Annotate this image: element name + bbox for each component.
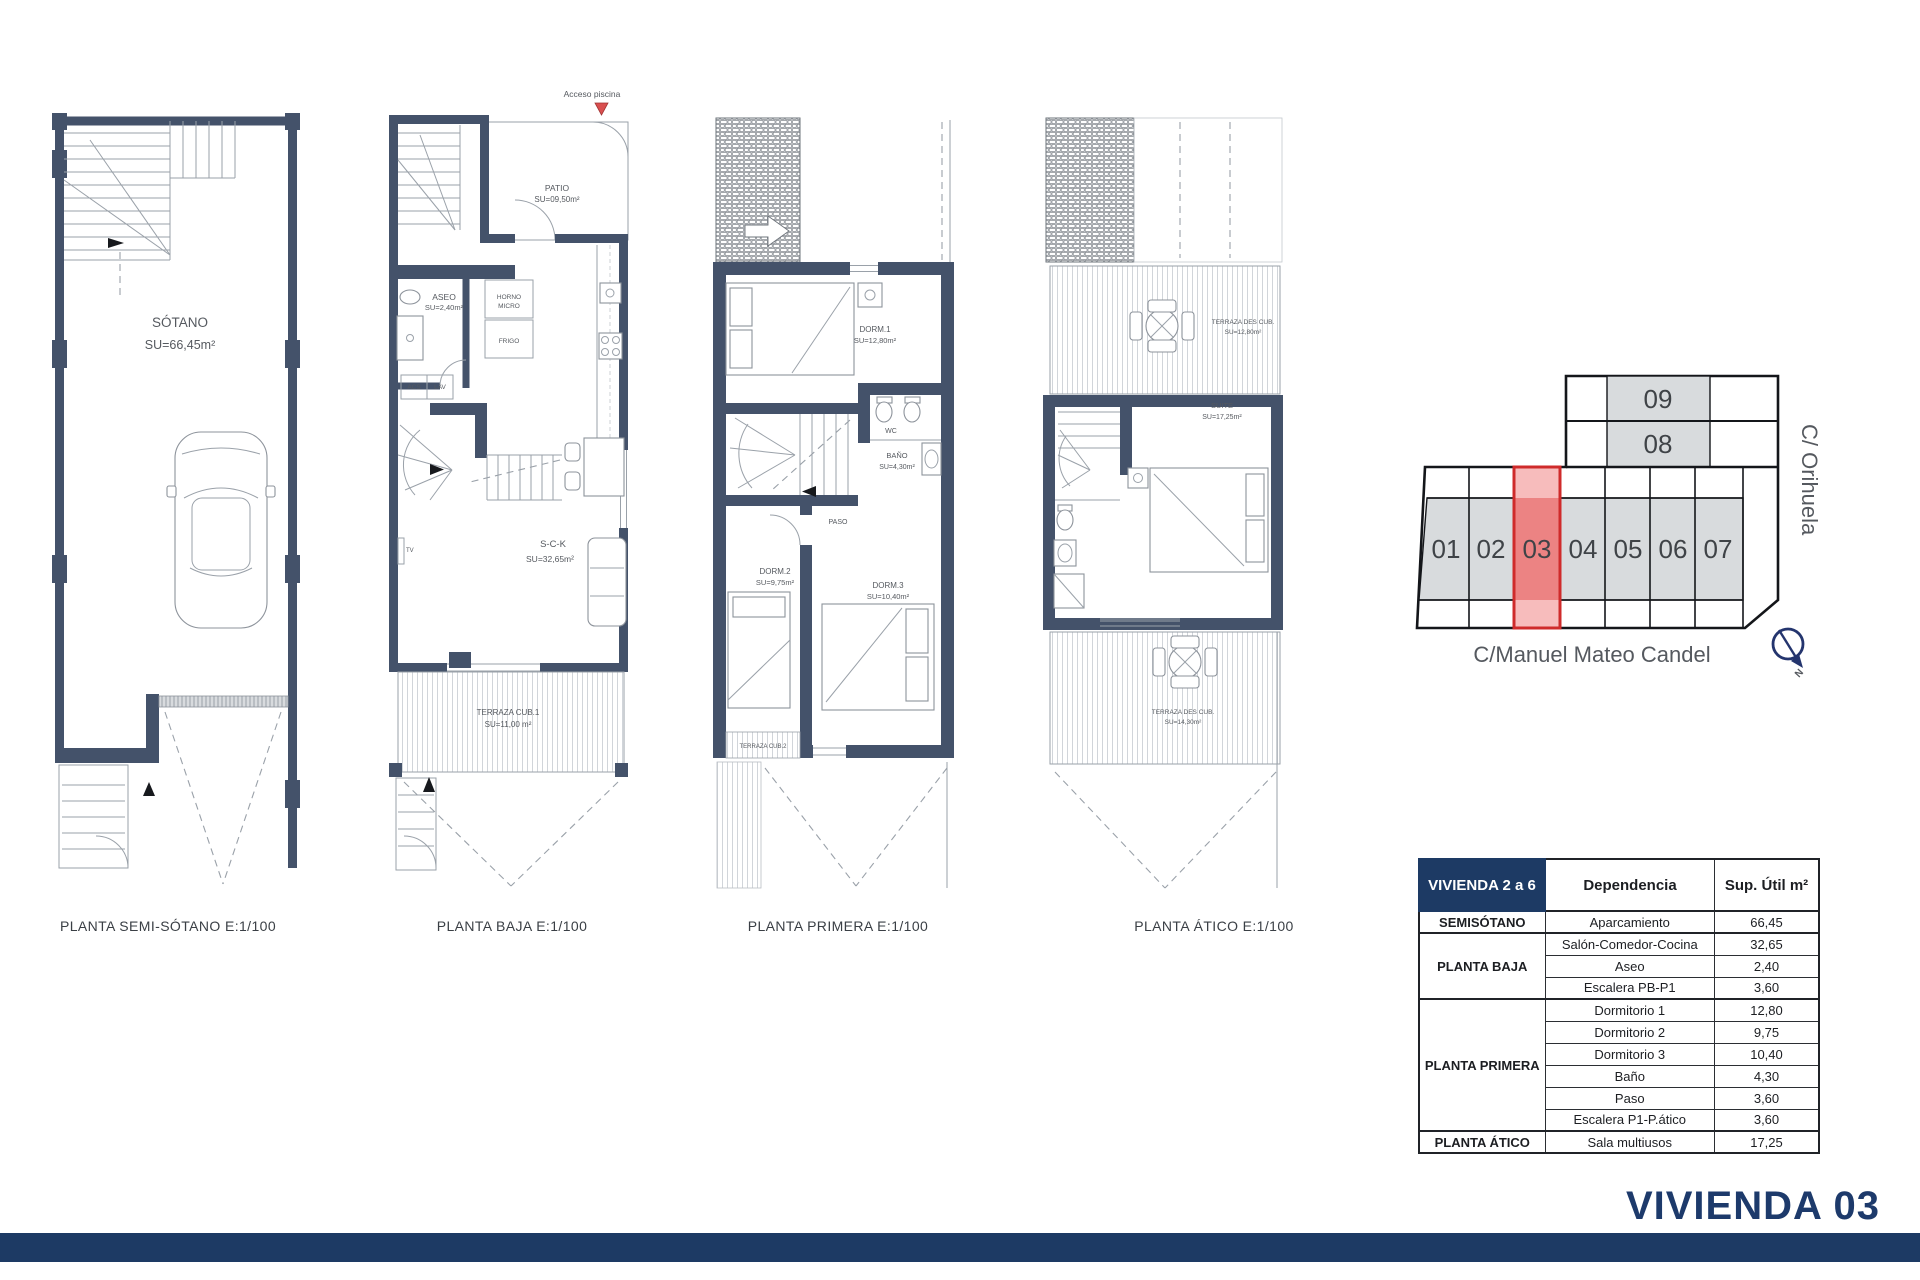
unit-number-03: 03 xyxy=(1523,534,1552,564)
sink-icon xyxy=(400,290,420,304)
room-label-terraza2: TERRAZA CUB.2 xyxy=(739,744,787,750)
table-cell-dep: Baño xyxy=(1545,1065,1715,1087)
street-label-bottom: C/Manuel Mateo Candel xyxy=(1473,642,1710,667)
pilaster xyxy=(449,652,471,668)
pergola-hatch xyxy=(716,118,800,262)
table-cell-dep: Dormitorio 1 xyxy=(1545,999,1715,1021)
ramp-edge xyxy=(1055,772,1165,888)
table-cell-dep: Escalera P1-P.ático xyxy=(1545,1109,1715,1131)
site-plan: 01 02 03 04 05 06 07 09 08 C/Manuel Mate… xyxy=(1417,376,1822,680)
room-area-sotano: SU=66,45m² xyxy=(145,338,216,352)
bed-dorm2 xyxy=(728,592,790,708)
stair-dash xyxy=(470,460,560,482)
acceso-piscina-label: Acceso piscina xyxy=(564,89,621,99)
room-area-dorm2: SU=9,75m² xyxy=(756,578,795,587)
wall xyxy=(1043,618,1283,630)
stair-dash xyxy=(772,420,850,490)
stairs xyxy=(1058,412,1120,488)
unit-number-09: 09 xyxy=(1644,384,1673,414)
floor-plan-atico: TERRAZA DES CUB. SU=12,80m² SU xyxy=(1043,118,1294,934)
wall xyxy=(1120,395,1132,475)
room-label-patio: PATIO xyxy=(545,183,570,193)
wall xyxy=(146,694,159,748)
ramp-edge xyxy=(856,768,947,886)
table-cell-dep: Dormitorio 2 xyxy=(1545,1021,1715,1043)
table-cell-sup: 17,25 xyxy=(1715,1131,1820,1153)
car-icon xyxy=(167,432,275,628)
room-label-dorm2: DORM.2 xyxy=(759,567,791,576)
wall xyxy=(726,403,858,414)
wall xyxy=(1043,395,1055,630)
unit-number-04: 04 xyxy=(1569,534,1598,564)
room-label-dorm1: DORM.1 xyxy=(859,325,891,334)
pilaster xyxy=(285,340,300,368)
unit-number-01: 01 xyxy=(1432,534,1461,564)
room-label-bano: BAÑO xyxy=(886,451,907,460)
wall xyxy=(475,403,487,458)
stairs xyxy=(64,121,235,260)
room-label-wc: WC xyxy=(885,428,897,435)
room-area-patio: SU=09,50m² xyxy=(534,195,579,204)
ramp-edge xyxy=(1165,772,1276,888)
pilaster xyxy=(285,780,300,808)
table-cell-sup: 2,40 xyxy=(1715,955,1820,977)
room-area-suite: SU=17,25m² xyxy=(1202,414,1242,421)
ramp-grille xyxy=(159,696,288,707)
table-cell-sup: 3,60 xyxy=(1715,1087,1820,1109)
ramp-edge xyxy=(165,712,223,884)
open-roof xyxy=(1134,118,1282,262)
bath-fixtures xyxy=(1054,505,1084,608)
floor-atico: PLANTA ÁTICO xyxy=(1419,1131,1545,1153)
floor-plan-baja: Acceso piscina PATIO SU=09,50m² xyxy=(389,89,628,934)
label-lav: LAV xyxy=(434,384,446,391)
door-arc xyxy=(515,200,555,240)
pilaster xyxy=(52,150,67,178)
wall xyxy=(858,383,954,395)
caption-baja: PLANTA BAJA E:1/100 xyxy=(437,918,588,934)
room-label-terr-sup: TERRAZA DES CUB. xyxy=(1212,319,1275,326)
ramp-edge xyxy=(511,782,618,886)
table-cell-dep: Sala multiusos xyxy=(1545,1131,1715,1153)
pergola-hatch xyxy=(1046,118,1134,262)
unit-number-06: 06 xyxy=(1659,534,1688,564)
unit-number-08: 08 xyxy=(1644,429,1673,459)
caption-semisotano: PLANTA SEMI-SÓTANO E:1/100 xyxy=(60,918,276,934)
direction-arrow-icon xyxy=(108,238,124,248)
table-cell-sup: 10,40 xyxy=(1715,1043,1820,1065)
entry-stairs xyxy=(396,777,436,870)
bed-suite xyxy=(1128,468,1268,572)
room-area-sck: SU=32,65m² xyxy=(526,554,574,564)
wall xyxy=(389,265,515,279)
ramp-edge xyxy=(765,768,856,886)
room-label-sck: S-C-K xyxy=(540,539,567,550)
wall xyxy=(941,262,954,758)
room-area-bano: SU=4,30m² xyxy=(879,464,915,471)
table-cell-sup: 9,75 xyxy=(1715,1021,1820,1043)
floor-semisotano: SEMISÓTANO xyxy=(1419,911,1545,933)
footer-bar xyxy=(0,1233,1920,1262)
room-label-aseo: ASEO xyxy=(432,292,456,302)
table-cell-dep: Aparcamiento xyxy=(1545,911,1715,933)
table-cell-dep: Dormitorio 3 xyxy=(1545,1043,1715,1065)
bed-dorm3 xyxy=(822,604,934,710)
floor-plan-semisotano: SÓTANO SU=66,45m² PLANTA SEMI-SÓTANO E:1… xyxy=(52,113,300,934)
wall xyxy=(713,262,726,758)
shower-icon xyxy=(397,316,423,360)
label-micro: MICRO xyxy=(498,303,520,310)
label-frigo: FRIGO xyxy=(499,338,520,345)
wall xyxy=(858,383,870,443)
wall xyxy=(1271,395,1283,630)
wall xyxy=(713,262,850,275)
table-cell-sup: 66,45 xyxy=(1715,911,1820,933)
table-cell-sup: 3,60 xyxy=(1715,977,1820,999)
unit-number-02: 02 xyxy=(1477,534,1506,564)
room-label-dorm3: DORM.3 xyxy=(872,581,904,590)
label-tv: TV xyxy=(406,548,414,554)
door-arc xyxy=(770,515,800,545)
room-label-sotano: SÓTANO xyxy=(152,315,208,330)
table-cell-dep: Escalera PB-P1 xyxy=(1545,977,1715,999)
patio-deck xyxy=(485,122,628,240)
ramp-edge xyxy=(223,712,281,884)
floor-baja: PLANTA BAJA xyxy=(1419,933,1545,999)
pilaster xyxy=(52,340,67,368)
room-label-paso: PASO xyxy=(829,519,848,526)
label-acs: ACS xyxy=(407,384,421,391)
pilaster xyxy=(52,113,67,130)
table-cell-sup: 32,65 xyxy=(1715,933,1820,955)
floor-primera: PLANTA PRIMERA xyxy=(1419,999,1545,1131)
tv-unit xyxy=(398,538,404,564)
table-cell-sup: 3,60 xyxy=(1715,1109,1820,1131)
room-area-terraza1: SU=11,00 m² xyxy=(485,720,532,729)
north-letter: N xyxy=(1793,667,1806,680)
room-area-aseo: SU=2,40m² xyxy=(425,303,464,312)
wall xyxy=(55,748,159,763)
wc-fixtures xyxy=(876,397,920,422)
wall xyxy=(1043,395,1283,407)
door-arc xyxy=(593,122,628,157)
exit-stairs xyxy=(59,765,155,868)
caption-atico: PLANTA ÁTICO E:1/100 xyxy=(1134,918,1293,934)
pilaster xyxy=(285,555,300,583)
pilaster xyxy=(52,555,67,583)
stairs xyxy=(398,125,460,230)
pilaster xyxy=(615,763,628,777)
room-area-dorm1: SU=12,80m² xyxy=(854,336,897,345)
surface-table: VIVIENDA 2 a 6 Dependencia Sup. Útil m² … xyxy=(1418,858,1820,1154)
side-deck xyxy=(717,762,761,888)
room-label-terr-inf: TERRAZA DES CUB. xyxy=(1152,709,1215,716)
bath-sink xyxy=(922,443,941,475)
wall xyxy=(800,506,812,515)
floor-plan-primera: DORM.1 SU=12,80m² WC BAÑO SU=4,30m² xyxy=(713,118,954,934)
sofa xyxy=(588,538,626,626)
dining-table xyxy=(565,438,624,496)
unit-number-07: 07 xyxy=(1704,534,1733,564)
table-cell-dep: Salón-Comedor-Cocina xyxy=(1545,933,1715,955)
table-cell-sup: 4,30 xyxy=(1715,1065,1820,1087)
room-label-terraza1: TERRAZA CUB.1 xyxy=(477,708,540,717)
pool-access-marker-icon xyxy=(595,103,608,115)
caption-primera: PLANTA PRIMERA E:1/100 xyxy=(748,918,929,934)
pilaster xyxy=(389,763,402,777)
street-label-right: C/ Orihuela xyxy=(1797,424,1822,536)
north-compass-icon: N xyxy=(1773,629,1806,680)
page-title: VIVIENDA 03 xyxy=(1560,1184,1880,1229)
table-header-sup: Sup. Útil m² xyxy=(1715,859,1820,911)
wall xyxy=(726,495,858,506)
room-area-terr-inf: SU=14,30m² xyxy=(1165,719,1203,726)
floorplans-canvas: SÓTANO SU=66,45m² PLANTA SEMI-SÓTANO E:1… xyxy=(0,0,1920,960)
table-cell-sup: 12,80 xyxy=(1715,999,1820,1021)
room-area-terr-sup: SU=12,80m² xyxy=(1225,329,1263,336)
wall xyxy=(800,545,812,745)
pilaster xyxy=(285,113,300,130)
room-area-dorm3: SU=10,40m² xyxy=(867,592,910,601)
label-horno: HORNO xyxy=(497,294,521,301)
table-header-vivienda: VIVIENDA 2 a 6 xyxy=(1419,859,1545,911)
table-cell-dep: Aseo xyxy=(1545,955,1715,977)
room-label-suite: SUITE xyxy=(1211,401,1233,410)
wall xyxy=(846,745,954,758)
table-header-dependencia: Dependencia xyxy=(1545,859,1715,911)
stairs xyxy=(730,414,848,495)
table-cell-dep: Paso xyxy=(1545,1087,1715,1109)
unit-number-05: 05 xyxy=(1614,534,1643,564)
